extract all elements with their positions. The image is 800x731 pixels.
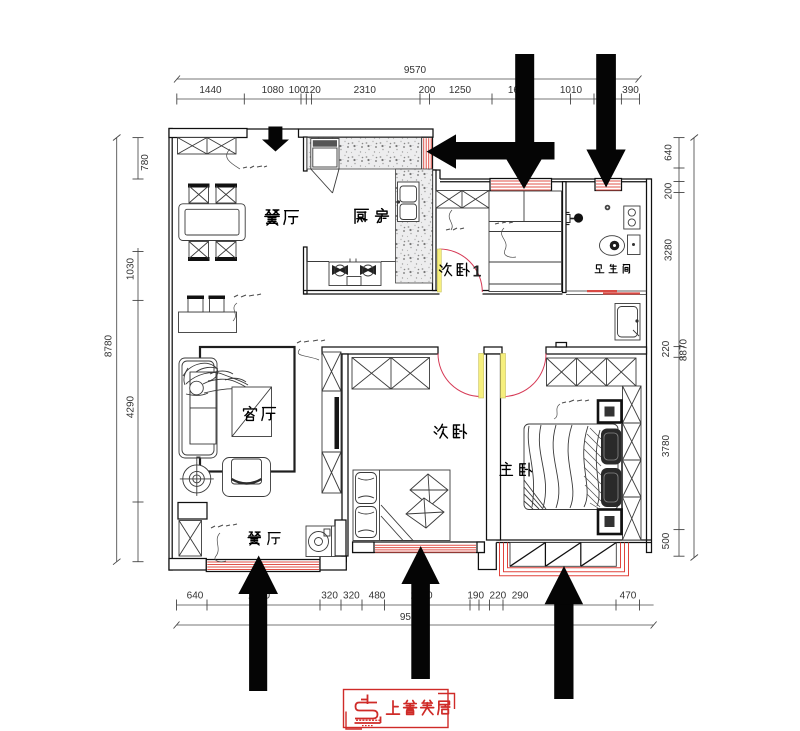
svg-text:1: 1 [473, 264, 482, 281]
svg-text:470: 470 [620, 591, 637, 602]
svg-text:120: 120 [304, 85, 321, 96]
svg-text:3780: 3780 [661, 434, 672, 457]
svg-text:780: 780 [140, 154, 151, 171]
svg-text:1030: 1030 [126, 257, 137, 280]
svg-text:3280: 3280 [664, 238, 675, 261]
svg-text:200: 200 [419, 85, 436, 96]
svg-text:500: 500 [661, 532, 672, 549]
svg-text:1010: 1010 [560, 85, 583, 96]
svg-text:190: 190 [467, 591, 484, 602]
svg-text:320: 320 [343, 591, 360, 602]
svg-text:290: 290 [512, 591, 529, 602]
svg-text:640: 640 [187, 591, 204, 602]
svg-text:8870: 8870 [679, 338, 690, 361]
svg-text:1250: 1250 [449, 85, 472, 96]
svg-text:1440: 1440 [199, 85, 222, 96]
svg-text:320: 320 [321, 591, 338, 602]
svg-text:640: 640 [664, 144, 675, 161]
svg-text:4290: 4290 [126, 395, 137, 418]
svg-text:200: 200 [664, 182, 675, 199]
svg-text:1080: 1080 [262, 85, 285, 96]
svg-text:220: 220 [661, 340, 672, 357]
svg-text:390: 390 [622, 85, 639, 96]
svg-text:9570: 9570 [404, 65, 427, 76]
svg-text:220: 220 [490, 591, 507, 602]
svg-text:480: 480 [369, 591, 386, 602]
svg-text:2310: 2310 [354, 85, 377, 96]
svg-text:8780: 8780 [104, 334, 115, 357]
